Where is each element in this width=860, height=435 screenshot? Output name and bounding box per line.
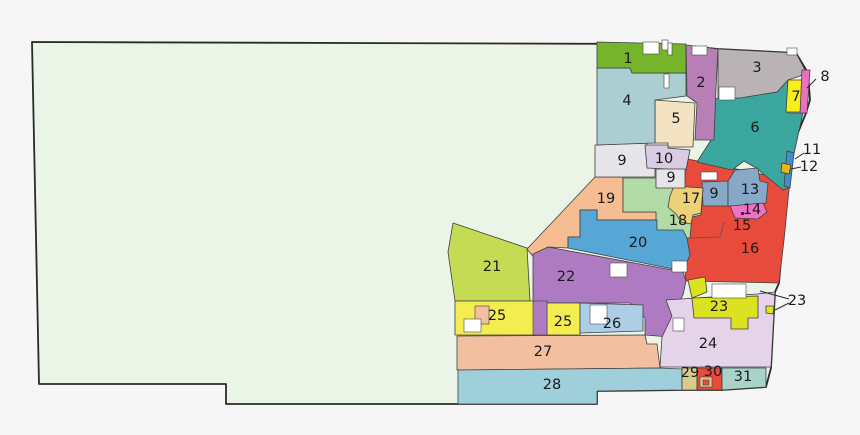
district-label: 17 xyxy=(682,191,700,207)
district-label: 3 xyxy=(752,60,761,76)
district-label: 16 xyxy=(741,241,759,257)
district-label: 15 xyxy=(733,218,751,234)
callout-label-23: 23 xyxy=(788,293,806,309)
district-label: 30 xyxy=(704,364,722,380)
district-27-region xyxy=(457,335,660,370)
white-enclave xyxy=(662,40,668,50)
white-enclave xyxy=(692,46,707,55)
district-label: 9 xyxy=(666,170,675,186)
district-label: 25 xyxy=(554,314,572,330)
callout-label-8: 8 xyxy=(820,69,829,85)
district-map: 1234567910991314151617181920212223242525… xyxy=(0,0,860,435)
callout-label-12: 12 xyxy=(800,159,818,175)
district-inset-patch xyxy=(703,380,709,385)
district-label: 9 xyxy=(617,153,626,169)
white-enclave xyxy=(664,74,669,88)
white-enclave xyxy=(672,261,687,272)
white-enclave xyxy=(668,43,672,55)
district-label: 5 xyxy=(671,111,680,127)
white-enclave xyxy=(787,48,797,55)
district-label: 28 xyxy=(543,377,561,393)
district-label: 21 xyxy=(483,259,501,275)
district-label: 13 xyxy=(741,182,759,198)
callout-label-11: 11 xyxy=(803,142,821,158)
district-label: 4 xyxy=(622,93,631,109)
white-enclave xyxy=(673,318,684,331)
district-12-region xyxy=(781,163,791,174)
district-map-figure: 1234567910991314151617181920212223242525… xyxy=(0,0,860,435)
district-1-region xyxy=(597,42,686,73)
white-enclave xyxy=(701,172,717,180)
district-label: 10 xyxy=(655,151,673,167)
district-label: 2 xyxy=(696,75,705,91)
district-label: 18 xyxy=(669,213,687,229)
district-inset-patch xyxy=(533,301,547,335)
white-enclave xyxy=(610,263,627,277)
district-label: 22 xyxy=(557,269,575,285)
district-label: 31 xyxy=(734,369,752,385)
white-enclave xyxy=(464,319,481,332)
white-enclave xyxy=(719,87,735,100)
district-label: 23 xyxy=(710,299,728,315)
district-label: 20 xyxy=(629,235,647,251)
district-28-region xyxy=(458,368,682,404)
district-label: 6 xyxy=(750,120,759,136)
district-label: 27 xyxy=(534,344,552,360)
district-label: 24 xyxy=(699,336,717,352)
district-label: 19 xyxy=(597,191,615,207)
district-label: 1 xyxy=(623,51,632,67)
district-label: 14 xyxy=(743,202,761,218)
district-label: 26 xyxy=(603,316,621,332)
district-label: 7 xyxy=(791,89,800,105)
district-label: 25 xyxy=(488,308,506,324)
district-label: 9 xyxy=(709,186,718,202)
district-23-region xyxy=(766,306,774,314)
district-label: 29 xyxy=(681,365,699,381)
white-enclave xyxy=(712,284,746,298)
white-enclave xyxy=(643,42,659,54)
